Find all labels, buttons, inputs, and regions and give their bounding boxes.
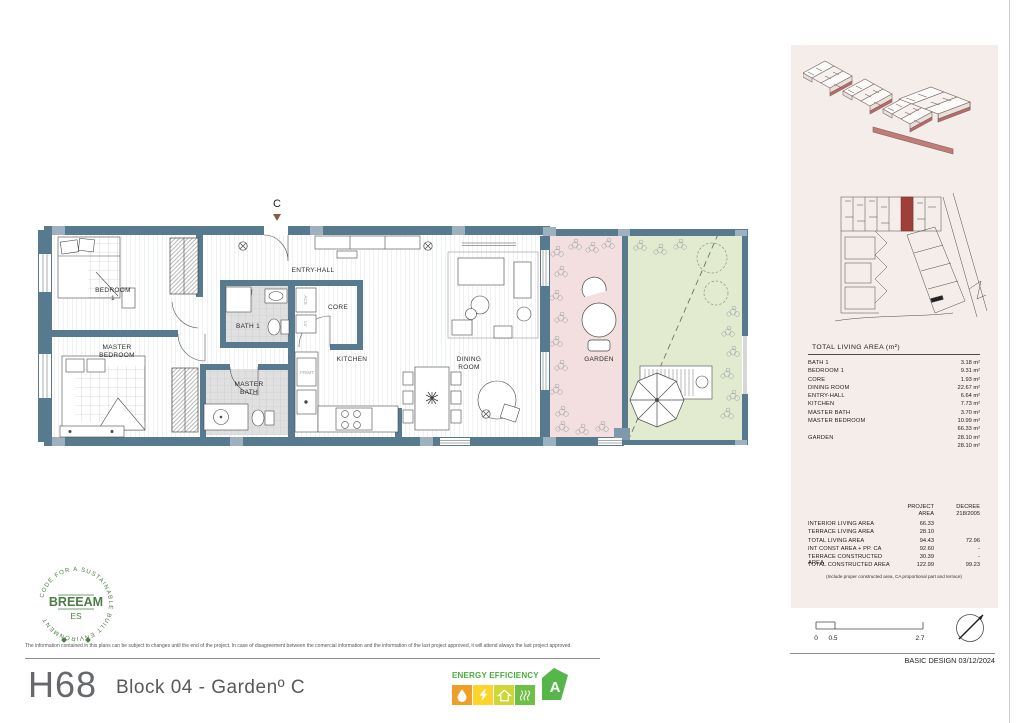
svg-text:0.5: 0.5 [828, 635, 837, 642]
building-3d-sketch [803, 57, 985, 187]
summary-row-label: TOTAL LIVING AREA [808, 538, 892, 544]
area-table-row: 66.33 m² [808, 426, 980, 434]
scale-bar [816, 622, 923, 629]
summary-table-row: TOTAL CONSTRUCTED AREA 122.99 99.23 [808, 562, 980, 570]
energy-rating-letter: A [550, 679, 561, 696]
area-table-rows: BATH 1 3.18 m² BEDROOM 1 9.31 m² CORE 1.… [808, 360, 980, 451]
summary-row-project: 92.60 [892, 546, 934, 552]
summary-row-decree: - [934, 546, 980, 552]
scale-labels: 0 0.5 2.7 [814, 635, 925, 642]
room-label-core: CORE [328, 304, 348, 311]
scale-and-compass: 0 0.5 2.7 [800, 603, 1000, 653]
section-marker: C [273, 198, 281, 221]
area-row-value: 66.33 m² [958, 426, 980, 432]
appliance-label-lv: LV [303, 321, 308, 326]
appliance-label-frmt: FR/MT [300, 370, 314, 375]
project-area-header: PROJECT [892, 504, 934, 511]
summary-table-row: INTERIOR LIVING AREA 66.33 [808, 521, 980, 529]
area-table-row: CORE 1.93 m² [808, 377, 980, 385]
area-row-value: 28.10 m² [958, 435, 980, 441]
area-row-label: MASTER BEDROOM [808, 418, 865, 424]
area-row-label: GARDEN [808, 435, 834, 441]
energy-title: ENERGY EFFICIENCY [452, 671, 539, 680]
summary-table-row: INT CONST AREA + PP. CA 92.60 - [808, 546, 980, 554]
area-row-label: DINING ROOM [808, 385, 849, 391]
room-label-bedroom1: BEDROOM [95, 287, 131, 294]
highlighted-unit [901, 197, 913, 231]
design-stamp: BASIC DESIGN 03/12/2024 [790, 656, 995, 665]
section-arrow-icon [273, 214, 281, 221]
energy-rating-arrow: A [540, 666, 570, 702]
area-table-row: BATH 1 3.18 m² [808, 360, 980, 368]
area-table-row: ENTRY-HALL 6.64 m² [808, 393, 980, 401]
area-row-value: 7.73 m² [961, 401, 980, 407]
summary-row-project: 28.10 [892, 529, 934, 535]
summary-table-rows: INTERIOR LIVING AREA 66.33 TERRACE LIVIN… [808, 521, 980, 570]
area-table-row: DINING ROOM 22.67 m² [808, 385, 980, 393]
summary-table-header: PROJECT AREA DECREE 218/2005 [808, 504, 980, 517]
room-label-bath1: BATH 1 [236, 323, 260, 330]
area-row-value: 3.70 m² [961, 410, 980, 416]
area-table-row: 28.10 m² [808, 443, 980, 451]
unit-code: H68 [28, 664, 97, 706]
area-table-row: GARDEN 28.10 m² [808, 435, 980, 443]
summary-row-decree: 72.96 [934, 538, 980, 544]
area-table-row: MASTER BEDROOM 10.99 m² [808, 418, 980, 426]
summary-row-decree: 99.23 [934, 562, 980, 568]
summary-row-label: INT CONST AREA + PP. CA [808, 546, 892, 552]
room-label-kitchen: KITCHEN [337, 356, 368, 363]
summary-table-row: TERRACE LIVING AREA 28.10 [808, 529, 980, 537]
summary-footnote: (Include proper constructed area, CA pro… [808, 574, 980, 579]
umbrella-icon [630, 373, 684, 427]
master-bed [60, 356, 145, 437]
area-row-label: CORE [808, 377, 825, 383]
area-row-label: BEDROOM 1 [808, 368, 844, 374]
electricity-icon [473, 685, 493, 705]
wardrobe2 [172, 368, 198, 432]
floor-plan: BEDROOM 1 MASTER BEDROOM BATH 1 MASTER B… [30, 185, 765, 460]
energy-efficiency-badge: ENERGY EFFICIENCY A [452, 666, 572, 714]
unit-title: Block 04 - Gardenº C [116, 677, 305, 699]
appliance-label-acs: ACS [303, 295, 308, 304]
area-row-value: 1.93 m² [961, 377, 980, 383]
north-compass-icon [957, 615, 984, 642]
area-table-row: BEDROOM 1 9.31 m² [808, 368, 980, 376]
area-row-label: BATH 1 [808, 360, 829, 366]
summary-row-label: TOTAL CONSTRUCTED AREA [808, 562, 892, 568]
energy-icons-row [452, 685, 535, 705]
room-label-masterbath: MASTER [235, 381, 264, 388]
area-row-label: ENTRY-HALL [808, 393, 845, 399]
area-row-value: 9.31 m² [961, 368, 980, 374]
dining-table [403, 367, 461, 430]
area-row-value: 22.67 m² [958, 385, 980, 391]
summary-table-row: TERRACE CONSTRUCTED AREA 30.39 - [808, 554, 980, 562]
water-icon [452, 685, 472, 705]
room-label-master2: BEDROOM [99, 352, 135, 359]
summary-table: PROJECT AREA DECREE 218/2005 INTERIOR LI… [808, 504, 980, 579]
info-panel: TOTAL LIVING AREA (m²) BATH 1 3.18 m² BE… [791, 45, 998, 608]
heating-icon [515, 685, 535, 705]
area-row-label: MASTER BATH [808, 410, 850, 416]
svg-text:0: 0 [814, 635, 818, 642]
summary-row-decree: - [934, 554, 980, 560]
area-row-value: 6.64 m² [961, 393, 980, 399]
disclaimer-text: The information contained in this plans … [25, 643, 600, 649]
area-row-value: 28.10 m² [958, 443, 980, 449]
footer-divider [25, 658, 600, 659]
room-label-garden: GARDEN [584, 356, 614, 363]
area-row-value: 3.18 m² [961, 360, 980, 366]
area-table: TOTAL LIVING AREA (m²) BATH 1 3.18 m² BE… [808, 344, 980, 451]
summary-row-project: 66.33 [892, 521, 934, 527]
summary-row-project: 122.99 [892, 562, 934, 568]
area-table-row: KITCHEN 7.73 m² [808, 401, 980, 409]
wardrobe1 [170, 238, 198, 294]
summary-row-project: 30.39 [892, 554, 934, 560]
breeam-name: BREEAM [49, 595, 103, 609]
summary-row-label: INTERIOR LIVING AREA [808, 521, 892, 527]
summary-row-project: 94.43 [892, 538, 934, 544]
room-label-dining: DINING [457, 356, 482, 363]
plan-sheet: BEDROOM 1 MASTER BEDROOM BATH 1 MASTER B… [0, 0, 1024, 723]
area-row-label: KITCHEN [808, 401, 834, 407]
room-label-dining2: ROOM [458, 364, 479, 371]
room-label-master: MASTER [103, 344, 132, 351]
summary-table-row: TOTAL LIVING AREA 94.43 72.96 [808, 538, 980, 546]
area-table-title: TOTAL LIVING AREA (m²) [808, 344, 980, 355]
section-label: C [273, 198, 281, 210]
summary-row-label: TERRACE LIVING AREA [808, 529, 892, 535]
stamp-divider [790, 653, 995, 654]
svg-text:2.7: 2.7 [915, 635, 924, 642]
breeam-logo: CODE FOR A SUSTAINABLE BUILT ENVIRONMENT… [28, 556, 124, 652]
house-icon [494, 685, 514, 705]
area-row-value: 10.99 m² [958, 418, 980, 424]
room-label-bedroom1-num: 1 [111, 295, 115, 302]
page-edge-line [1009, 0, 1010, 723]
decree-header: DECREE [934, 504, 980, 511]
room-label-entryhall: ENTRY-HALL [292, 267, 335, 274]
breeam-sub: ES [70, 611, 82, 621]
area-table-row: MASTER BATH 3.70 m² [808, 410, 980, 418]
room-label-masterbath2: BATH [240, 389, 258, 396]
site-plan-sketch [831, 193, 991, 328]
